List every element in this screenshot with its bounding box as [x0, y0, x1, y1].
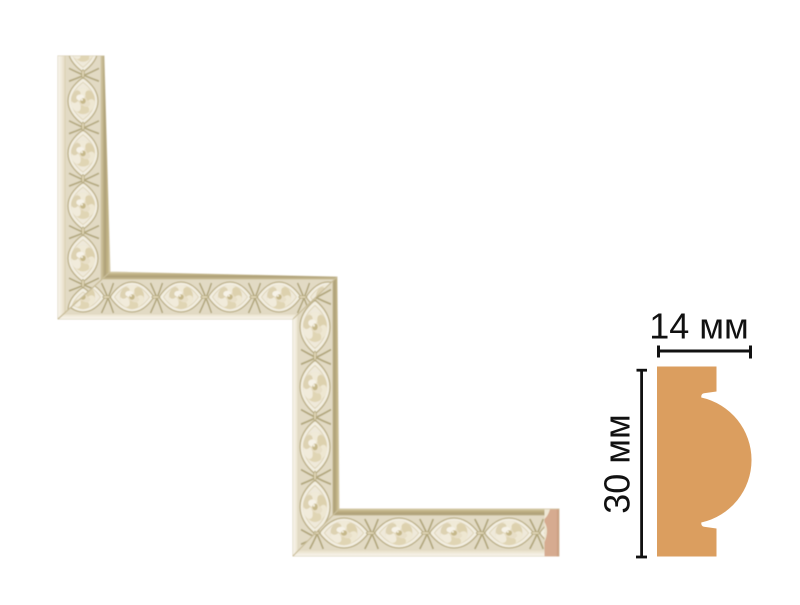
svg-text:14 мм: 14 мм	[649, 306, 749, 347]
svg-text:30 мм: 30 мм	[597, 414, 638, 514]
